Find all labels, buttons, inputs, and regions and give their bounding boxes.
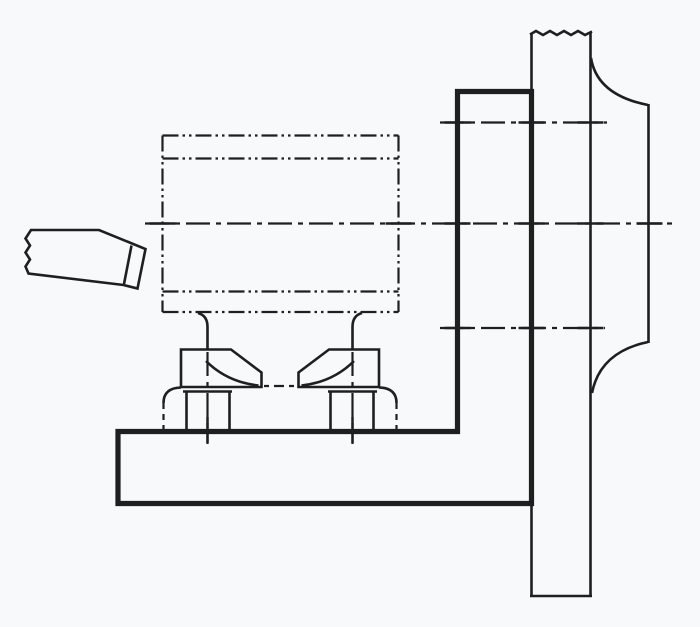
faceplate-hub-bottom-fillet bbox=[592, 342, 648, 393]
right-clamp-outline bbox=[299, 350, 380, 388]
faceplate-hub-top-fillet bbox=[591, 58, 648, 105]
technical-drawing bbox=[0, 0, 700, 627]
right-support-arc bbox=[379, 388, 397, 404]
cutting-tool-tip-line bbox=[124, 246, 132, 285]
angle-plate-outline bbox=[118, 92, 532, 504]
left-clamp-outline bbox=[181, 350, 262, 388]
drawing-canvas bbox=[0, 0, 700, 627]
faceplate-top-break-line bbox=[530, 31, 592, 35]
centerline-crossing-ticks bbox=[150, 123, 663, 444]
right-stud bbox=[353, 313, 363, 350]
left-support-arc bbox=[164, 388, 182, 404]
left-stud bbox=[198, 313, 208, 350]
